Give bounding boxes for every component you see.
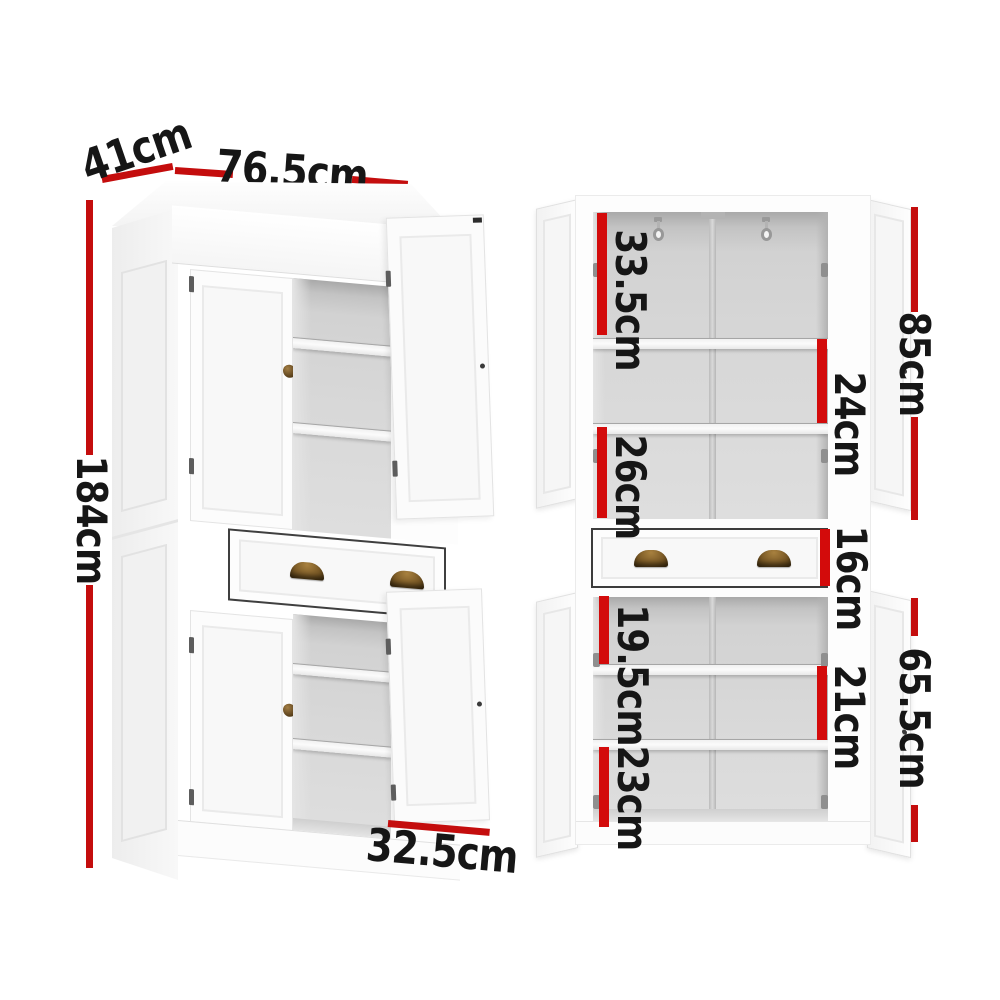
upper-compartment-1-text: 33.5cm xyxy=(609,229,651,370)
lower-open-door-hinge-bottom xyxy=(391,785,397,801)
lower-open-door-catch xyxy=(477,701,482,706)
height-dimension-line-lower xyxy=(86,585,93,868)
upper-open-door xyxy=(386,214,494,519)
upper-left-door-hinge-bottom xyxy=(189,458,194,474)
height-dimension-line-upper xyxy=(86,200,93,455)
divider-top-mount xyxy=(701,212,725,219)
door-width-dimension-text: 32.5cm xyxy=(364,822,519,880)
lower-compartment-1-text: 19.5cm xyxy=(611,604,653,745)
upper-compartment-3-text: 26cm xyxy=(609,435,651,540)
left-perspective-view: 184cm 41cm 76.5cm xyxy=(0,0,520,1000)
lower-open-door xyxy=(386,588,490,823)
side-panel-inset-upper xyxy=(121,260,167,512)
upper-open-door-hinge-bottom xyxy=(392,461,398,477)
lower-compartment-2-text: 21cm xyxy=(828,665,870,770)
upper-left-door-hinge-top xyxy=(189,276,194,292)
upper-opening-back-corner xyxy=(293,278,311,532)
lower-section-line-bottom xyxy=(911,805,918,842)
lower-section-line-top xyxy=(911,598,918,636)
height-dimension-text: 184cm xyxy=(70,456,112,585)
hinge-plate xyxy=(821,263,828,277)
lower-left-door-panel xyxy=(202,625,283,818)
side-panel-inset-lower xyxy=(121,544,167,842)
right-front-view: 33.5cm 24cm 26cm 16cm 19.5cm 21cm 23cm xyxy=(520,0,1000,1000)
lower-opening-interior xyxy=(293,614,391,839)
upper-open-door-catch xyxy=(480,363,485,368)
front-drawer-handle-right xyxy=(757,550,791,567)
hinge-plate xyxy=(821,795,828,809)
upper-compartment-2-text: 24cm xyxy=(828,372,870,477)
lower-opening-back-corner xyxy=(293,614,311,832)
cabinet-side-panel xyxy=(112,206,178,882)
front-upper-left-open-door xyxy=(536,199,578,509)
lower-open-door-hinge-top xyxy=(386,639,392,655)
hook-ring xyxy=(761,228,772,241)
lower-left-door-hinge-bottom xyxy=(189,789,194,805)
lower-left-door-hinge-top xyxy=(189,637,194,653)
side-panel-seam xyxy=(112,519,178,540)
front-lower-center-divider xyxy=(709,597,716,821)
lower-left-door-closed xyxy=(190,610,293,831)
drawer-height-text: 16cm xyxy=(830,526,872,631)
lower-open-door-panel xyxy=(400,606,477,806)
upper-left-door-closed xyxy=(190,269,293,530)
lower-section-text: 65.5cm xyxy=(893,647,935,788)
upper-open-door-panel xyxy=(399,234,480,502)
upper-section-line-top xyxy=(911,207,918,312)
lower-compartment-3-text: 23cm xyxy=(611,746,653,851)
upper-section-text: 85cm xyxy=(893,312,935,417)
front-upper-center-divider xyxy=(709,212,716,519)
front-upper-shelf-2 xyxy=(593,423,828,434)
front-upper-left-door-panel xyxy=(543,214,571,494)
upper-opening-interior xyxy=(293,278,391,539)
front-lower-left-open-door xyxy=(536,592,578,858)
upper-left-door-panel xyxy=(202,285,283,516)
depth-dimension-text: 41cm xyxy=(76,110,197,189)
front-lower-left-door-panel xyxy=(543,607,571,843)
upper-open-door-latch xyxy=(473,217,482,222)
product-dimension-diagram: 184cm 41cm 76.5cm xyxy=(0,0,1000,1000)
upper-section-line-bottom xyxy=(911,417,918,520)
hanging-hook-right xyxy=(760,217,772,243)
front-drawer-handle-left xyxy=(634,550,668,567)
upper-open-door-hinge-top xyxy=(386,271,392,287)
